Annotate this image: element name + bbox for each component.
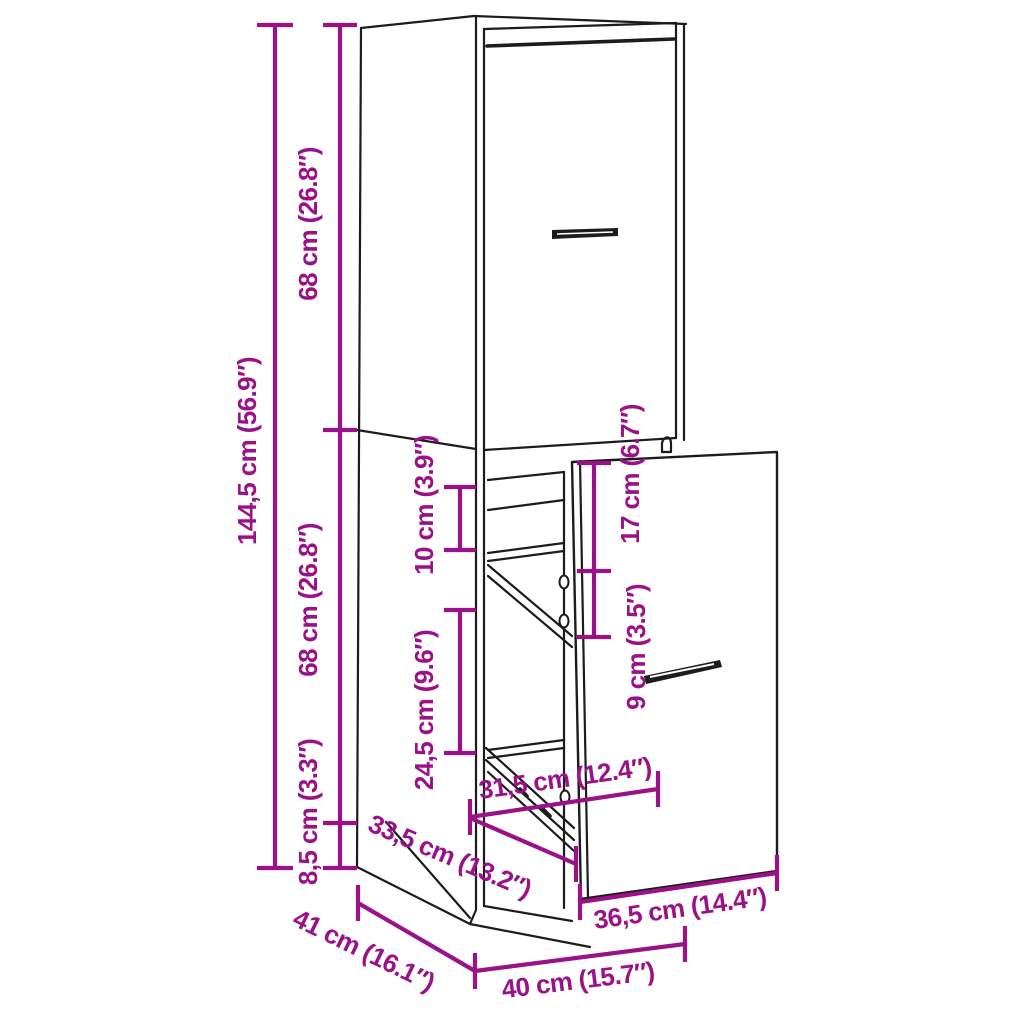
base-corner-join — [470, 910, 476, 924]
cabinet-top-left-edge — [361, 16, 474, 28]
dim-label-lower-shelf-gap: 24,5 cm (9.6″) — [409, 630, 439, 790]
dim-line-sections — [323, 25, 357, 868]
dim-line-top-shelf-gap — [444, 487, 476, 550]
dim-label-upper-section: 68 cm (26.8″) — [293, 147, 323, 301]
drawer-slide-upper-1 — [488, 565, 572, 636]
dim-label-lower-section: 68 cm (26.8″) — [293, 523, 323, 677]
upper-door-bottom-edge — [484, 438, 676, 450]
interior-bottom-front-edge — [484, 906, 572, 921]
screw-hole-2 — [560, 615, 569, 628]
dim-label-top-shelf-gap: 10 cm (3.9″) — [409, 435, 439, 575]
dim-line-lower-shelf-gap — [444, 610, 476, 753]
drawer-slide-upper-2 — [488, 576, 572, 647]
dim-label-total-height: 144,5 cm (56.9″) — [232, 357, 262, 545]
cabinet-top-front-edge — [484, 23, 676, 29]
base-front-edge — [470, 924, 590, 947]
dim-label-base-height: 8,5 cm (3.3″) — [293, 739, 323, 885]
dim-label-depth: 41 cm (16.1″) — [288, 903, 439, 997]
dim-label-drawer-extension: 33,5 cm (13.2″) — [364, 808, 536, 904]
back-panel-top-edge — [488, 500, 564, 510]
dim-label-handle-inset: 9 cm (3.5″) — [621, 584, 651, 710]
diagram-canvas: 144,5 cm (56.9″) 68 cm (26.8″) 68 cm (26… — [0, 0, 1024, 1024]
upper-door-top-gap — [487, 39, 674, 46]
dim-line-total-height — [257, 25, 293, 868]
fixed-shelf-underside — [488, 472, 564, 480]
dimension-diagram: 144,5 cm (56.9″) 68 cm (26.8″) 68 cm (26… — [0, 0, 1024, 1024]
dim-label-drawer-top-inset: 17 cm (6.7″) — [615, 404, 645, 544]
screw-hole-1 — [560, 576, 569, 589]
